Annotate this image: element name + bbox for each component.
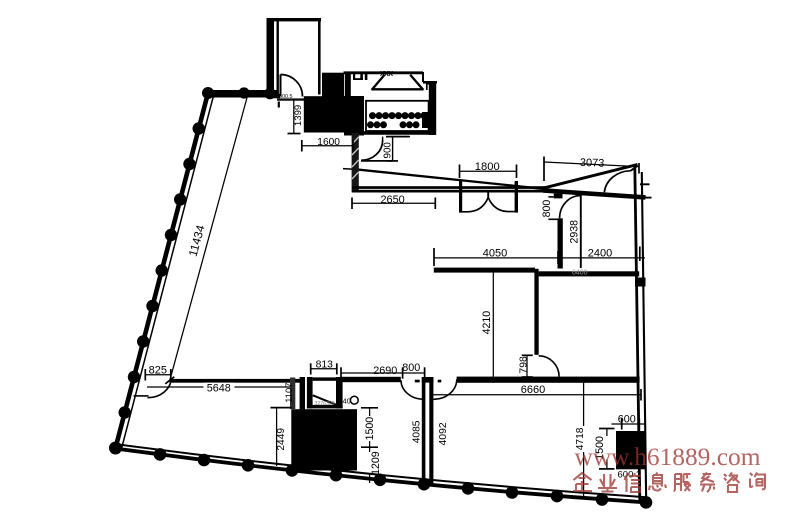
- svg-text:3276309: 3276309: [315, 401, 335, 407]
- svg-text:800: 800: [541, 200, 553, 218]
- svg-text:2690: 2690: [373, 365, 397, 377]
- svg-text:800.5: 800.5: [279, 94, 293, 100]
- svg-text:40: 40: [343, 397, 351, 406]
- svg-text:900: 900: [383, 142, 394, 159]
- svg-text:2650: 2650: [381, 194, 405, 206]
- svg-text:798: 798: [518, 356, 529, 374]
- svg-text:2400: 2400: [588, 247, 612, 259]
- svg-text:1800: 1800: [475, 161, 500, 173]
- svg-text:1107: 1107: [283, 383, 294, 403]
- svg-text:6400: 6400: [572, 270, 588, 277]
- svg-text:1500: 1500: [364, 417, 376, 441]
- svg-text:4210: 4210: [481, 311, 493, 335]
- svg-text:800: 800: [402, 362, 420, 374]
- svg-text:825: 825: [149, 364, 167, 376]
- svg-text:3073: 3073: [580, 157, 605, 170]
- svg-text:813: 813: [316, 359, 334, 370]
- svg-text:1600: 1600: [317, 137, 340, 148]
- svg-text:1399: 1399: [293, 105, 304, 126]
- svg-text:4092: 4092: [438, 422, 449, 445]
- svg-text:XXX: XXX: [380, 71, 393, 78]
- svg-text:2449: 2449: [276, 428, 287, 451]
- svg-text:2938: 2938: [568, 220, 580, 244]
- svg-text:5648: 5648: [207, 383, 231, 395]
- svg-text:www.h61889.com: www.h61889.com: [575, 443, 761, 471]
- svg-text:6660: 6660: [521, 384, 545, 396]
- svg-text:600: 600: [618, 413, 636, 425]
- svg-text:4085: 4085: [412, 420, 423, 443]
- svg-text:1209: 1209: [370, 451, 382, 475]
- svg-text:4050: 4050: [483, 247, 507, 259]
